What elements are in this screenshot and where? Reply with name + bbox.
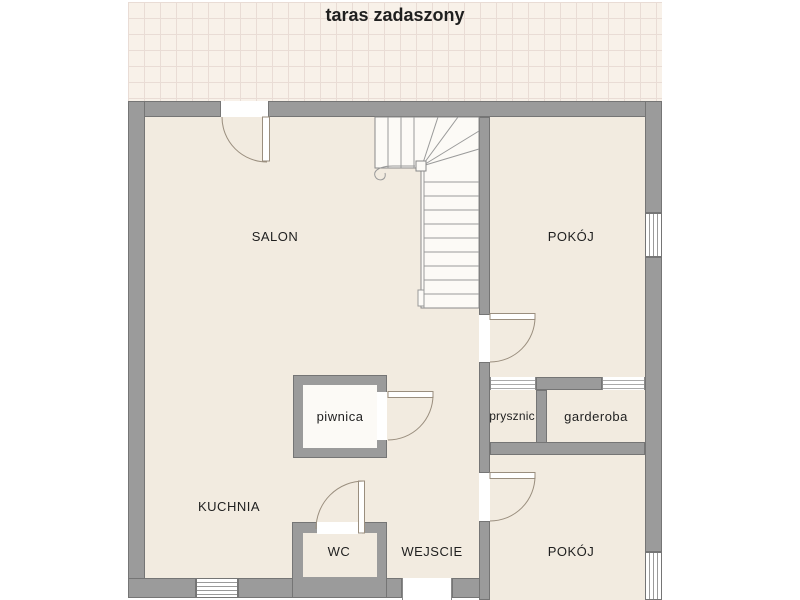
room-label-garderoba: garderoba bbox=[564, 409, 628, 424]
room-label-prysznic: prysznic bbox=[489, 409, 535, 423]
stairs-and-doors-overlay bbox=[0, 0, 800, 600]
room-label-kuchnia: KUCHNIA bbox=[198, 499, 260, 514]
floor-plan: taras zadaszony bbox=[0, 0, 800, 600]
room-label-wejscie: WEJSCIE bbox=[401, 544, 462, 559]
room-label-wc: WC bbox=[328, 544, 351, 559]
staircase bbox=[375, 117, 479, 308]
room-label-pokoj-top: POKÓJ bbox=[548, 229, 595, 244]
room-label-pokoj-bottom: POKÓJ bbox=[548, 544, 595, 559]
door-leaves bbox=[263, 117, 536, 533]
room-label-salon: SALON bbox=[252, 229, 299, 244]
door-swing-arcs bbox=[222, 117, 535, 529]
room-label-piwnica: piwnica bbox=[317, 409, 364, 424]
